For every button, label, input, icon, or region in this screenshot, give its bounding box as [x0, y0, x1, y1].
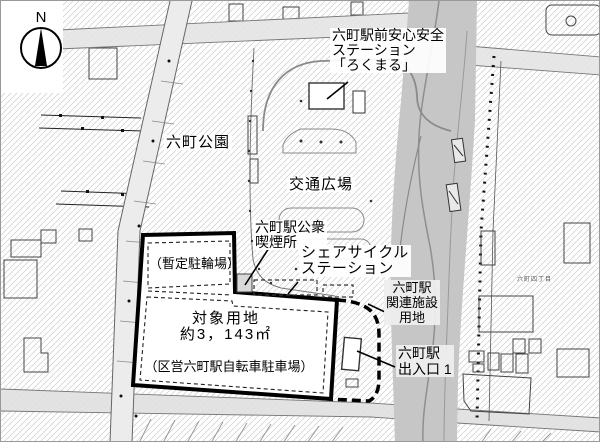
label-site-name: 対象用地	[141, 311, 311, 326]
label-line: 出入口 1	[398, 361, 452, 377]
label-line: ステーション	[332, 43, 444, 58]
label-district: 六町四丁目	[517, 273, 552, 288]
compass-n-label: N	[36, 9, 47, 26]
label-site-note: （区営六町駅自転車駐車場）	[119, 359, 339, 374]
label-traffic-plaza: 交通広場	[287, 177, 355, 192]
label-line: 用地	[386, 310, 438, 325]
label-line: 六町駅	[398, 345, 452, 361]
label-park: 六町公園	[164, 135, 232, 150]
label-safety-station: 六町駅前安心安全 ステーション 「ろくまる」	[330, 28, 446, 73]
north-compass-icon: N	[1, 1, 63, 93]
label-line: 六町駅	[386, 280, 438, 295]
label-site-area: 約3，143㎡	[141, 327, 311, 342]
label-station-exit: 六町駅 出入口 1	[396, 345, 454, 377]
label-temporary-parking: （暫定駐輪場）	[149, 256, 240, 271]
label-share-cycle: シェアサイクル ステーション	[299, 245, 411, 277]
label-line: 「ろくまる」	[332, 58, 444, 73]
label-line: ステーション	[301, 261, 409, 277]
label-line: 六町駅公衆	[255, 220, 325, 235]
label-line: 六町駅前安心安全	[332, 28, 444, 43]
label-line: 関連施設	[386, 295, 438, 310]
label-related-facility: 六町駅 関連施設 用地	[384, 280, 440, 325]
label-line: シェアサイクル	[301, 245, 409, 261]
map-canvas: N 六町駅前安心安全 ステーション 「ろくまる」 六町公園 交通広場 六町駅公衆…	[0, 0, 600, 442]
station-exit-building	[342, 337, 362, 370]
